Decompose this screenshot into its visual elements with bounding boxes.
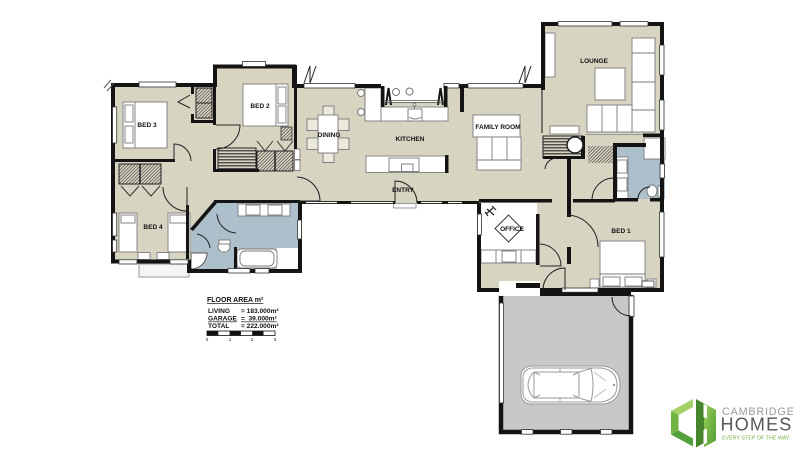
svg-text:BED 3: BED 3 [137, 122, 157, 129]
svg-text:OFFICE: OFFICE [500, 226, 524, 233]
svg-text:HOMES: HOMES [721, 415, 793, 435]
svg-text:0: 0 [206, 337, 209, 342]
svg-text:DINING: DINING [318, 132, 341, 139]
svg-text:KITCHEN: KITCHEN [396, 136, 425, 143]
svg-text:BED 2: BED 2 [250, 103, 270, 110]
svg-text:LOUNGE: LOUNGE [580, 58, 608, 65]
svg-text:LIVING: LIVING [208, 308, 230, 315]
svg-text:= 222.000m²: = 222.000m² [241, 323, 279, 330]
svg-text:GARAGE: GARAGE [208, 316, 238, 323]
svg-text:3: 3 [274, 337, 277, 342]
svg-text:1: 1 [229, 337, 232, 342]
svg-text:FAMILY ROOM: FAMILY ROOM [475, 124, 520, 131]
svg-text:BED 1: BED 1 [611, 228, 631, 235]
svg-text:2: 2 [251, 337, 254, 342]
svg-text:= 39.000m²: = 39.000m² [241, 316, 278, 323]
svg-text:EVERY STEP OF THE WAY: EVERY STEP OF THE WAY [722, 436, 790, 442]
svg-text:ENTRY: ENTRY [392, 187, 414, 194]
svg-text:TOTAL: TOTAL [208, 323, 229, 330]
svg-text:FLOOR AREA m²: FLOOR AREA m² [207, 297, 264, 304]
svg-text:BED 4: BED 4 [143, 224, 163, 231]
svg-text:= 183.000m²: = 183.000m² [241, 308, 279, 315]
